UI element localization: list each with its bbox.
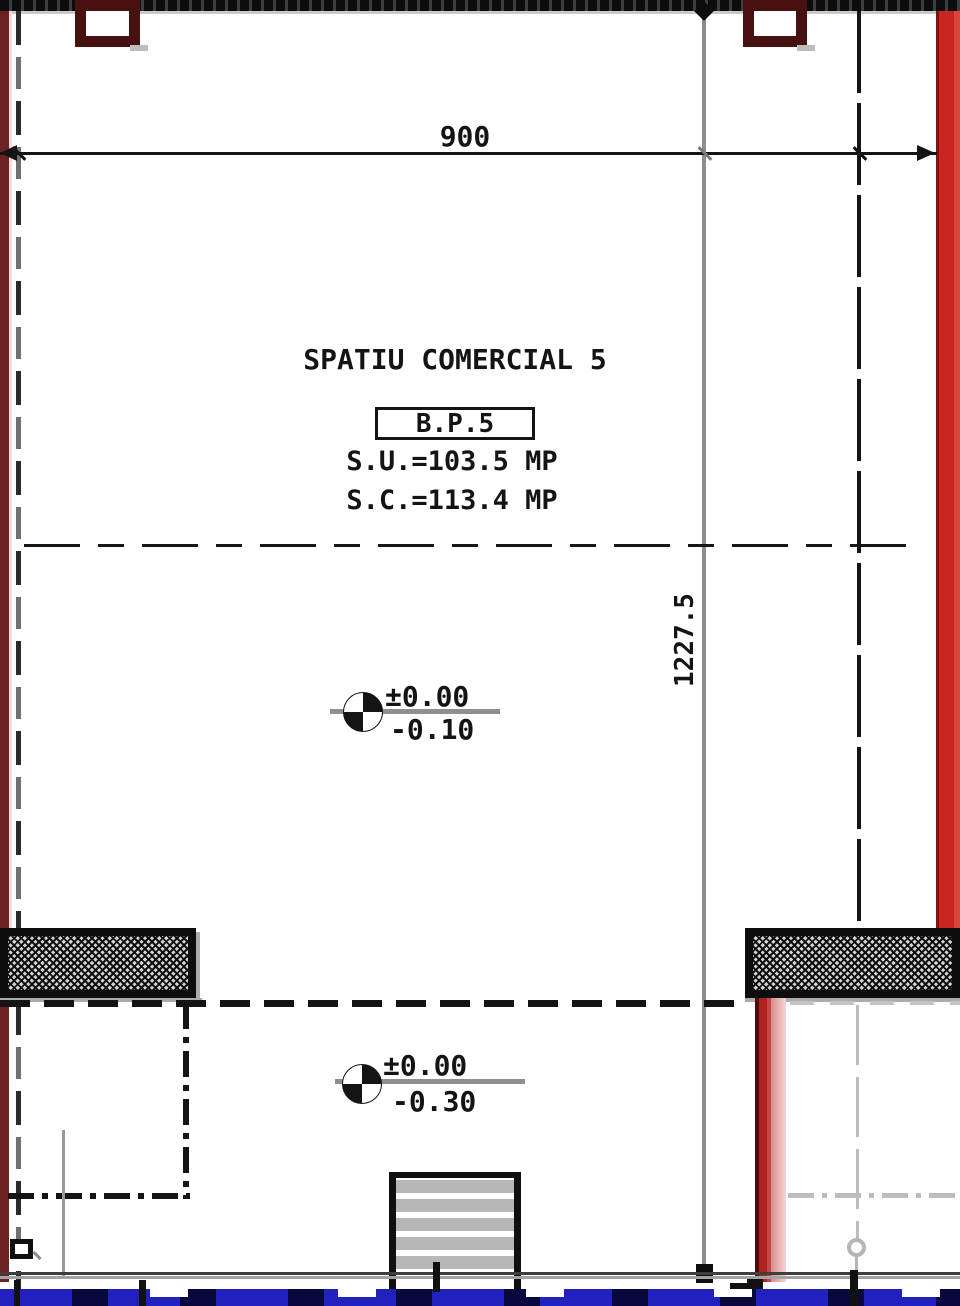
door-jamb-pink <box>771 998 786 1282</box>
hidden-dashdot-line <box>788 1193 960 1198</box>
wall-shadow <box>196 932 200 998</box>
zone-dash-line <box>24 544 921 547</box>
room-title: SPATIU COMERCIAL 5 <box>270 343 640 376</box>
top-wall-shadow <box>0 11 960 14</box>
floor-plan-canvas: 900 SPATIU COMERCIAL 5 B.P.5 S.U.=103.5 … <box>0 0 960 1306</box>
storefront-line-dark <box>0 1272 960 1275</box>
canopy-outline-bottom <box>8 1193 190 1199</box>
usable-area-label: S.U.=103.5 MP <box>292 446 612 477</box>
wall-left-lower <box>0 998 9 1282</box>
door-jamb-red <box>755 998 771 1282</box>
mullion-tick <box>14 1280 20 1306</box>
reference-circle-icon <box>847 1238 866 1257</box>
level-value-above: ±0.00 <box>383 1049 467 1082</box>
canopy-outline-right <box>183 1003 189 1199</box>
hidden-line-vertical <box>856 1005 859 1257</box>
dimension-arrow-right-icon <box>917 145 935 161</box>
junction-box-icon <box>10 1239 33 1259</box>
hidden-line-top <box>790 1001 960 1005</box>
storefront-line-light <box>0 1276 960 1279</box>
dashed-partition-line <box>0 1000 748 1007</box>
axis-line-center <box>702 11 706 1278</box>
stair-treads <box>396 1180 514 1272</box>
unit-tag-label: B.P.5 <box>416 409 494 439</box>
unit-tag-box: B.P.5 <box>375 407 535 440</box>
column-shadow-right <box>797 45 815 51</box>
stair-top-edge <box>389 1172 521 1178</box>
built-area-label: S.C.=113.4 MP <box>292 485 612 516</box>
mullion-tick <box>433 1262 440 1292</box>
junction-box-tail <box>32 1251 41 1260</box>
column-outline-right <box>743 0 807 47</box>
level-value-below: -0.30 <box>392 1085 476 1118</box>
axis-line-left <box>16 11 21 1290</box>
hatched-wall-right <box>745 928 960 998</box>
column-shadow-left <box>130 45 148 51</box>
wall-right-red <box>936 11 960 928</box>
mullion-tick <box>139 1280 146 1306</box>
mullion-tick <box>850 1270 858 1306</box>
dimension-value-vertical: 1227.5 <box>670 570 700 710</box>
hidden-line-left <box>62 1130 65 1277</box>
dimension-value-horizontal: 900 <box>400 120 530 153</box>
stair-stringer-right <box>514 1172 521 1306</box>
level-marker-icon <box>343 692 383 732</box>
level-value-below: -0.10 <box>390 713 474 746</box>
column-outline-left <box>75 0 140 47</box>
level-marker-icon <box>342 1064 382 1104</box>
level-value-above: ±0.00 <box>385 680 469 713</box>
stair-stringer-left <box>389 1172 396 1306</box>
top-wall-band <box>0 0 960 11</box>
hatched-wall-left <box>0 928 196 998</box>
